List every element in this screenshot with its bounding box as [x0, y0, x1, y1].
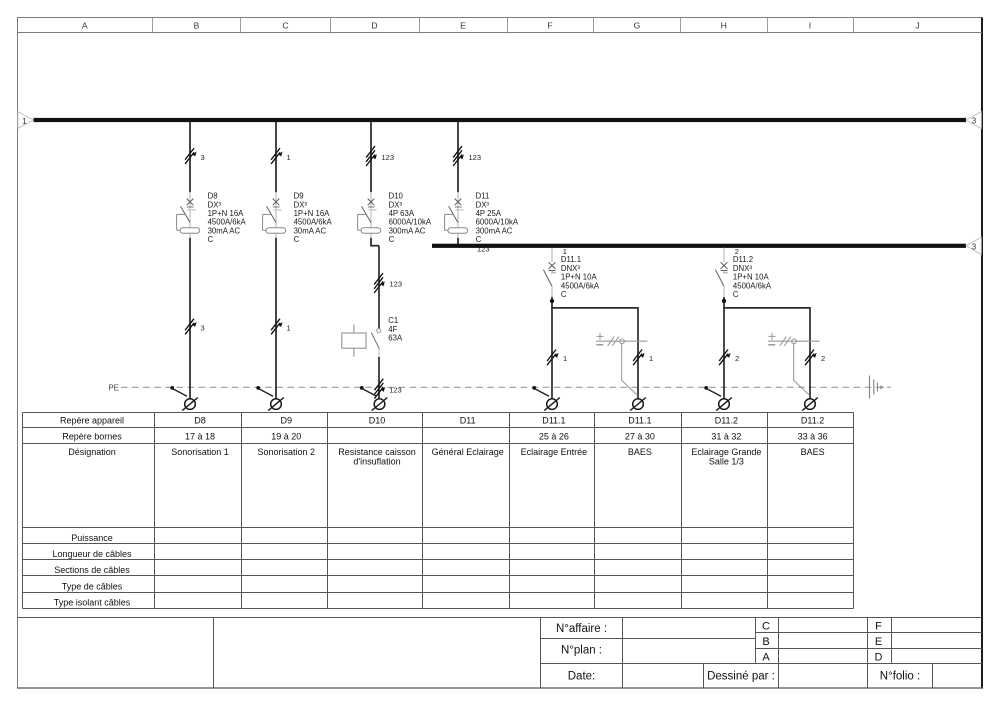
svg-text:C1: C1	[388, 316, 398, 325]
svg-text:DNX³: DNX³	[561, 264, 580, 273]
svg-text:D: D	[371, 21, 377, 31]
svg-text:4P 25A: 4P 25A	[476, 209, 502, 218]
svg-text:D11.2: D11.2	[715, 416, 738, 426]
svg-text:1P+N 10A: 1P+N 10A	[733, 273, 770, 282]
svg-text:Repère appareil: Repère appareil	[60, 416, 124, 426]
svg-text:31 à 32: 31 à 32	[711, 432, 741, 442]
svg-text:Longueur de câbles: Longueur de câbles	[52, 549, 132, 559]
svg-text:Eclairage Entrée: Eclairage Entrée	[521, 447, 588, 457]
svg-text:300mA AC: 300mA AC	[476, 226, 513, 235]
svg-text:30mA AC: 30mA AC	[294, 226, 327, 235]
svg-text:D8: D8	[208, 192, 218, 201]
svg-text:C: C	[208, 235, 214, 244]
svg-text:Général Eclairage: Général Eclairage	[432, 447, 504, 457]
svg-text:25 à 26: 25 à 26	[539, 432, 569, 442]
svg-text:DX³: DX³	[389, 200, 403, 209]
svg-text:D11: D11	[460, 416, 476, 426]
svg-text:3: 3	[201, 153, 205, 162]
svg-text:1: 1	[22, 117, 27, 126]
svg-text:Repère bornes: Repère bornes	[62, 432, 122, 442]
svg-text:Puissance: Puissance	[71, 533, 113, 543]
svg-text:4500A/6kA: 4500A/6kA	[733, 281, 772, 290]
svg-text:2: 2	[735, 354, 739, 363]
svg-text:I: I	[809, 21, 811, 31]
svg-text:J: J	[915, 21, 919, 31]
svg-text:1: 1	[649, 354, 653, 363]
svg-text:19 à 20: 19 à 20	[271, 432, 301, 442]
svg-text:D11.1: D11.1	[561, 255, 581, 264]
svg-text:C: C	[733, 290, 739, 299]
svg-text:123: 123	[389, 385, 402, 394]
svg-text:Sections de câbles: Sections de câbles	[54, 565, 130, 575]
svg-text:E: E	[460, 21, 466, 31]
svg-text:Salle 1/3: Salle 1/3	[709, 456, 744, 466]
svg-text:BAES: BAES	[628, 447, 652, 457]
svg-text:4F: 4F	[388, 325, 397, 334]
svg-text:G: G	[634, 21, 641, 31]
svg-text:N°plan :: N°plan :	[561, 645, 602, 657]
svg-text:Eclairage Grande: Eclairage Grande	[691, 447, 761, 457]
svg-text:C: C	[561, 290, 567, 299]
svg-text:H: H	[721, 21, 727, 31]
svg-text:1: 1	[563, 354, 567, 363]
svg-text:PE: PE	[108, 384, 119, 393]
svg-text:B: B	[194, 21, 200, 31]
svg-text:F: F	[547, 21, 552, 31]
svg-text:3: 3	[201, 323, 205, 332]
svg-text:Resistance caisson: Resistance caisson	[338, 447, 416, 457]
svg-text:D11.2: D11.2	[733, 255, 753, 264]
svg-text:123: 123	[390, 280, 403, 289]
svg-text:Dessiné par :: Dessiné par :	[707, 671, 775, 683]
svg-text:4500A/6kA: 4500A/6kA	[561, 281, 600, 290]
svg-text:63A: 63A	[388, 334, 403, 343]
svg-text:1: 1	[287, 323, 291, 332]
svg-text:D10: D10	[389, 192, 404, 201]
svg-text:F: F	[875, 621, 882, 633]
svg-text:D11.1: D11.1	[542, 416, 565, 426]
svg-text:Désignation: Désignation	[68, 447, 116, 457]
svg-text:1P+N 16A: 1P+N 16A	[208, 209, 245, 218]
svg-text:C: C	[294, 235, 300, 244]
svg-text:D11.2: D11.2	[801, 416, 824, 426]
svg-text:DX³: DX³	[294, 200, 308, 209]
svg-text:Sonorisation 2: Sonorisation 2	[258, 447, 316, 457]
svg-text:3: 3	[972, 243, 977, 252]
svg-text:Sonorisation 1: Sonorisation 1	[171, 447, 229, 457]
svg-text:C: C	[389, 235, 395, 244]
svg-text:27 à 30: 27 à 30	[625, 432, 655, 442]
svg-text:3: 3	[972, 117, 977, 126]
svg-text:E: E	[875, 636, 882, 648]
svg-text:N°folio :: N°folio :	[880, 671, 920, 683]
svg-text:C: C	[282, 21, 288, 31]
svg-text:DX³: DX³	[476, 200, 490, 209]
svg-text:A: A	[82, 21, 88, 31]
svg-text:D9: D9	[294, 192, 304, 201]
svg-text:DNX³: DNX³	[733, 264, 752, 273]
svg-text:4500A/6kA: 4500A/6kA	[208, 218, 247, 227]
svg-text:123: 123	[469, 153, 482, 162]
svg-text:C: C	[762, 621, 770, 633]
svg-text:N°affaire :: N°affaire :	[556, 623, 607, 635]
svg-text:2: 2	[821, 354, 825, 363]
svg-text:1P+N 10A: 1P+N 10A	[561, 273, 598, 282]
svg-text:30mA AC: 30mA AC	[208, 226, 241, 235]
svg-text:Type de câbles: Type de câbles	[62, 581, 123, 591]
svg-text:C: C	[476, 235, 482, 244]
svg-text:D8: D8	[194, 416, 206, 426]
svg-text:D9: D9	[281, 416, 293, 426]
svg-text:4P 63A: 4P 63A	[389, 209, 415, 218]
svg-text:BAES: BAES	[801, 447, 825, 457]
svg-text:D11: D11	[476, 192, 490, 201]
svg-text:33 à 36: 33 à 36	[798, 432, 828, 442]
svg-text:B: B	[762, 636, 769, 648]
svg-text:6000A/10kA: 6000A/10kA	[389, 218, 432, 227]
svg-text:Date:: Date:	[568, 671, 596, 683]
svg-text:300mA AC: 300mA AC	[389, 226, 426, 235]
svg-text:123: 123	[382, 153, 395, 162]
svg-text:1: 1	[287, 153, 291, 162]
svg-text:A: A	[762, 652, 770, 664]
svg-text:17 à 18: 17 à 18	[185, 432, 215, 442]
svg-text:D11.1: D11.1	[628, 416, 651, 426]
svg-text:Type isolant câbles: Type isolant câbles	[54, 598, 131, 608]
svg-text:1P+N 16A: 1P+N 16A	[294, 209, 331, 218]
svg-text:6000A/10kA: 6000A/10kA	[476, 218, 519, 227]
svg-text:DX³: DX³	[208, 200, 222, 209]
svg-text:4500A/6kA: 4500A/6kA	[294, 218, 333, 227]
svg-text:D10: D10	[369, 416, 386, 426]
svg-text:D: D	[875, 652, 883, 664]
svg-text:d'insuflation: d'insuflation	[353, 456, 400, 466]
